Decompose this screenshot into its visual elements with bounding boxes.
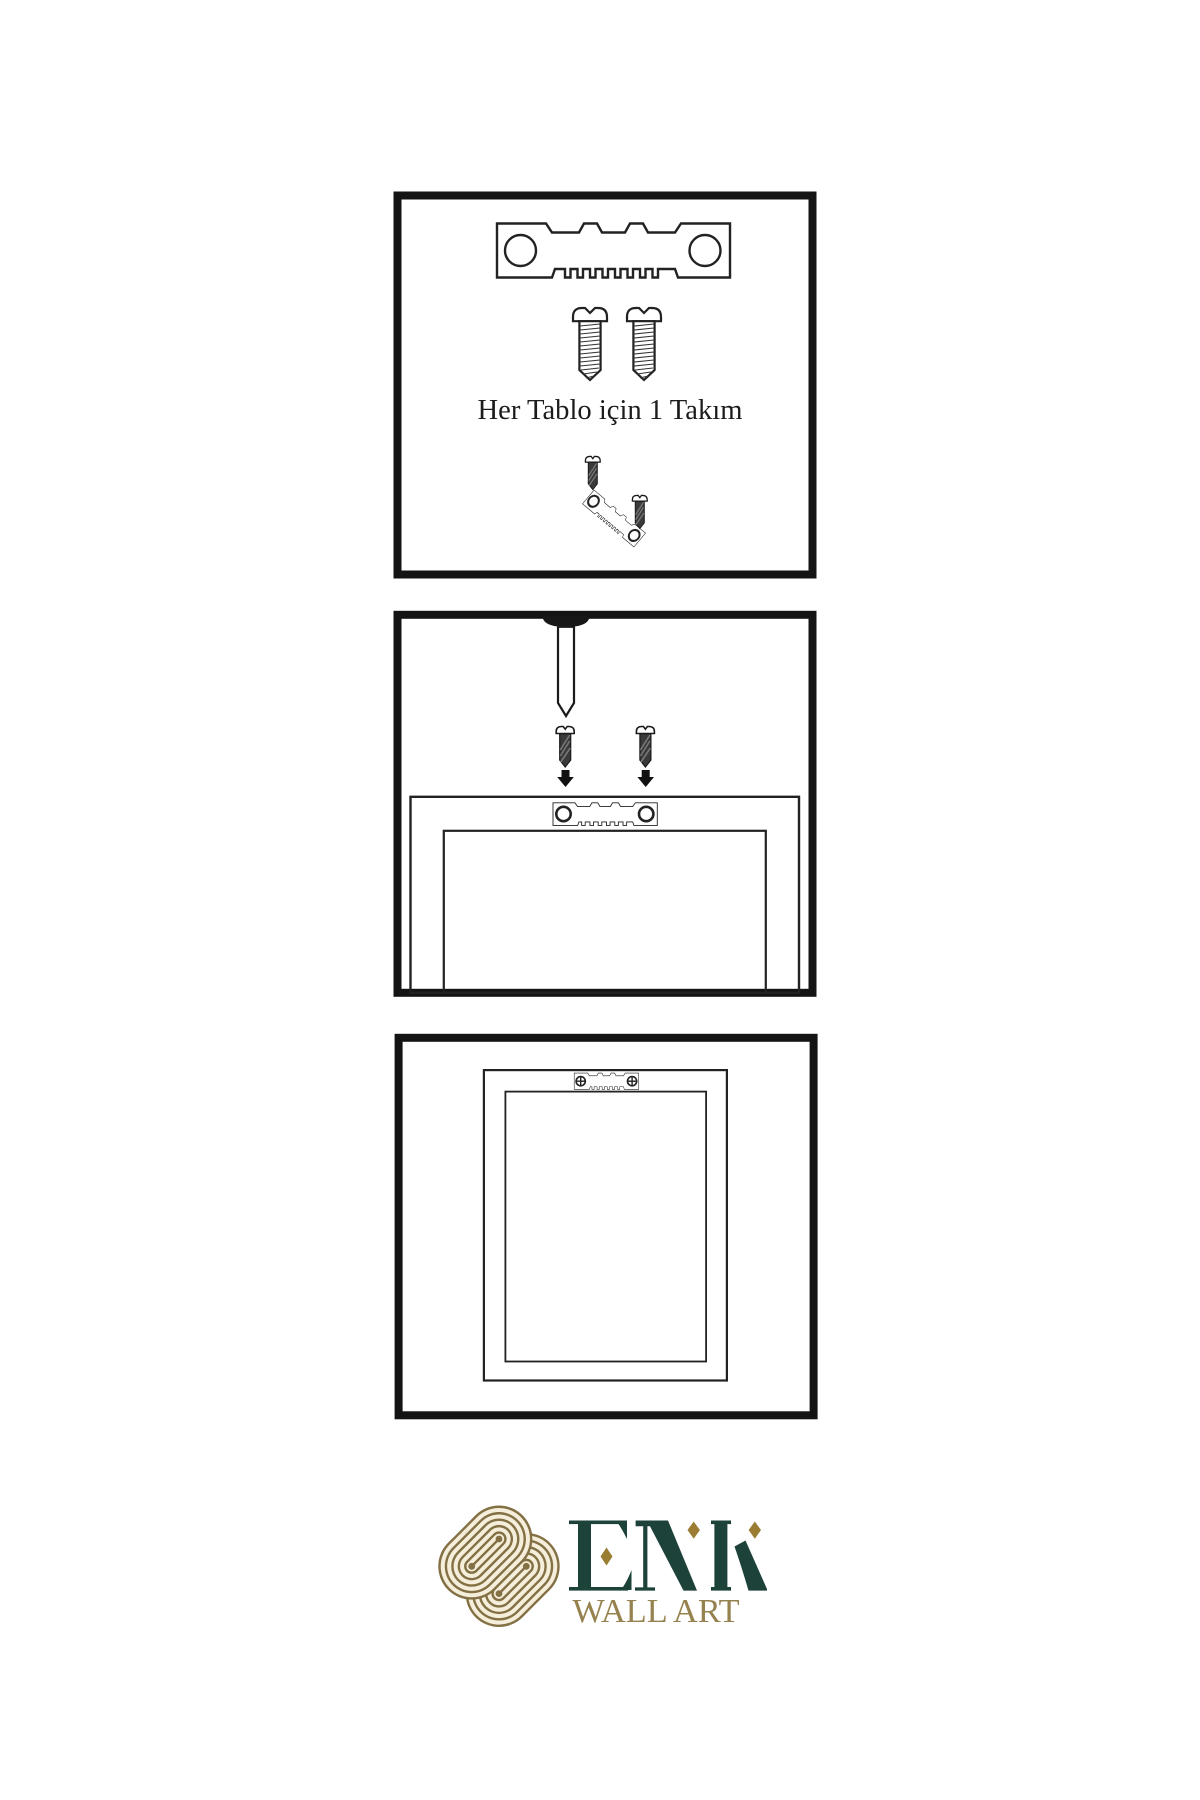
- svg-text:WALL ART: WALL ART: [572, 1592, 739, 1630]
- svg-text:Her Tablo için 1 Takım: Her Tablo için 1 Takım: [478, 395, 743, 426]
